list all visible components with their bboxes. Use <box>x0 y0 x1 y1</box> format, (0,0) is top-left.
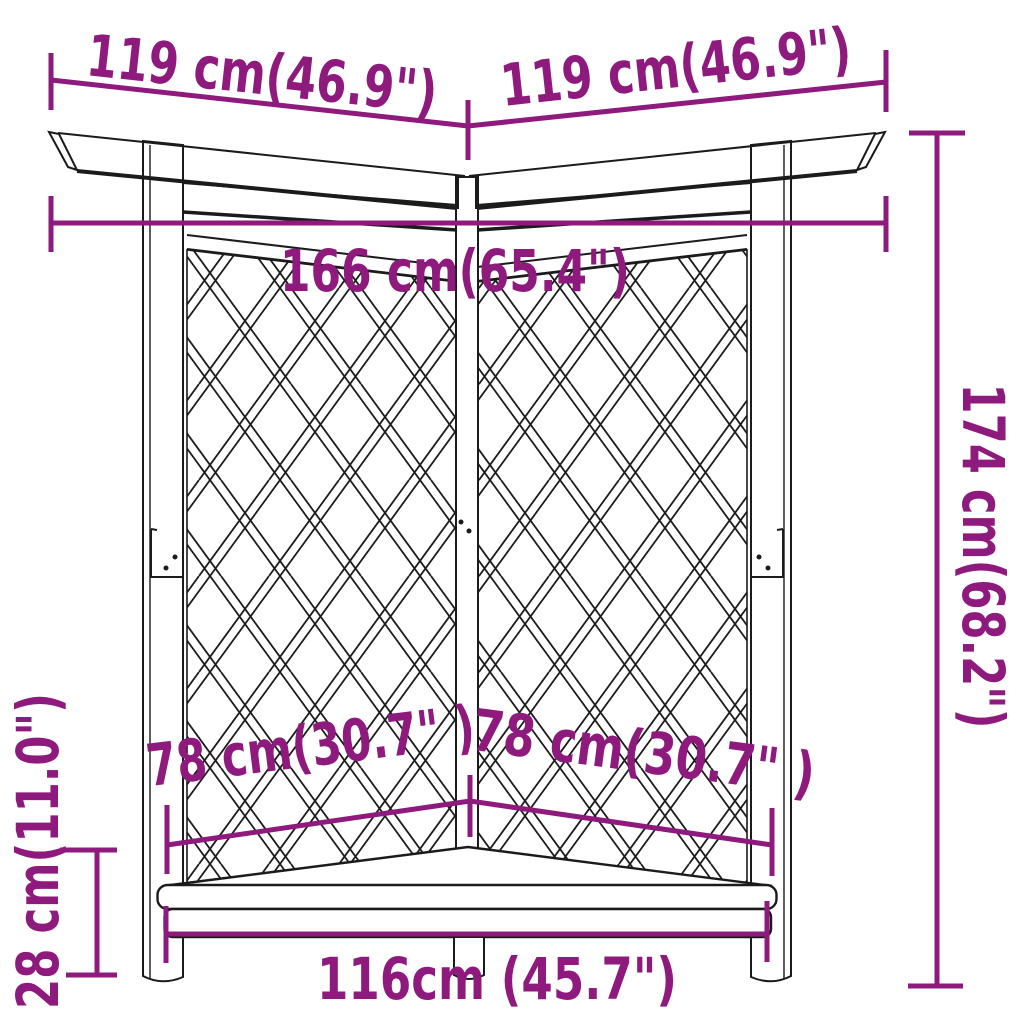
pergola-dimension-diagram: 119 cm(46.9") 119 cm(46.9") 166 cm(65.4"… <box>0 0 1024 1024</box>
left-post <box>143 141 183 981</box>
roof-end-cap-right <box>857 132 885 170</box>
diagram-canvas: 119 cm(46.9") 119 cm(46.9") 166 cm(65.4"… <box>0 0 1024 1024</box>
seat-front-board <box>158 885 777 909</box>
roof-end-cap-left <box>49 132 77 170</box>
dim-label-overall-width: 166 cm(65.4") <box>280 237 630 305</box>
dim-label-roof-left-width: 119 cm(46.9") <box>84 21 441 127</box>
dim-label-overall-height: 174 cm(68.2") <box>949 384 1017 729</box>
dim-label-seat-height: 28 cm(11.0") <box>4 693 72 1009</box>
roof-top-edge-right <box>469 133 876 176</box>
roof-top-edge-left <box>58 133 465 176</box>
dim-label-bench-width: 116cm (45.7") <box>317 945 677 1013</box>
screw-hole <box>467 529 472 534</box>
screw-hole <box>459 520 464 525</box>
